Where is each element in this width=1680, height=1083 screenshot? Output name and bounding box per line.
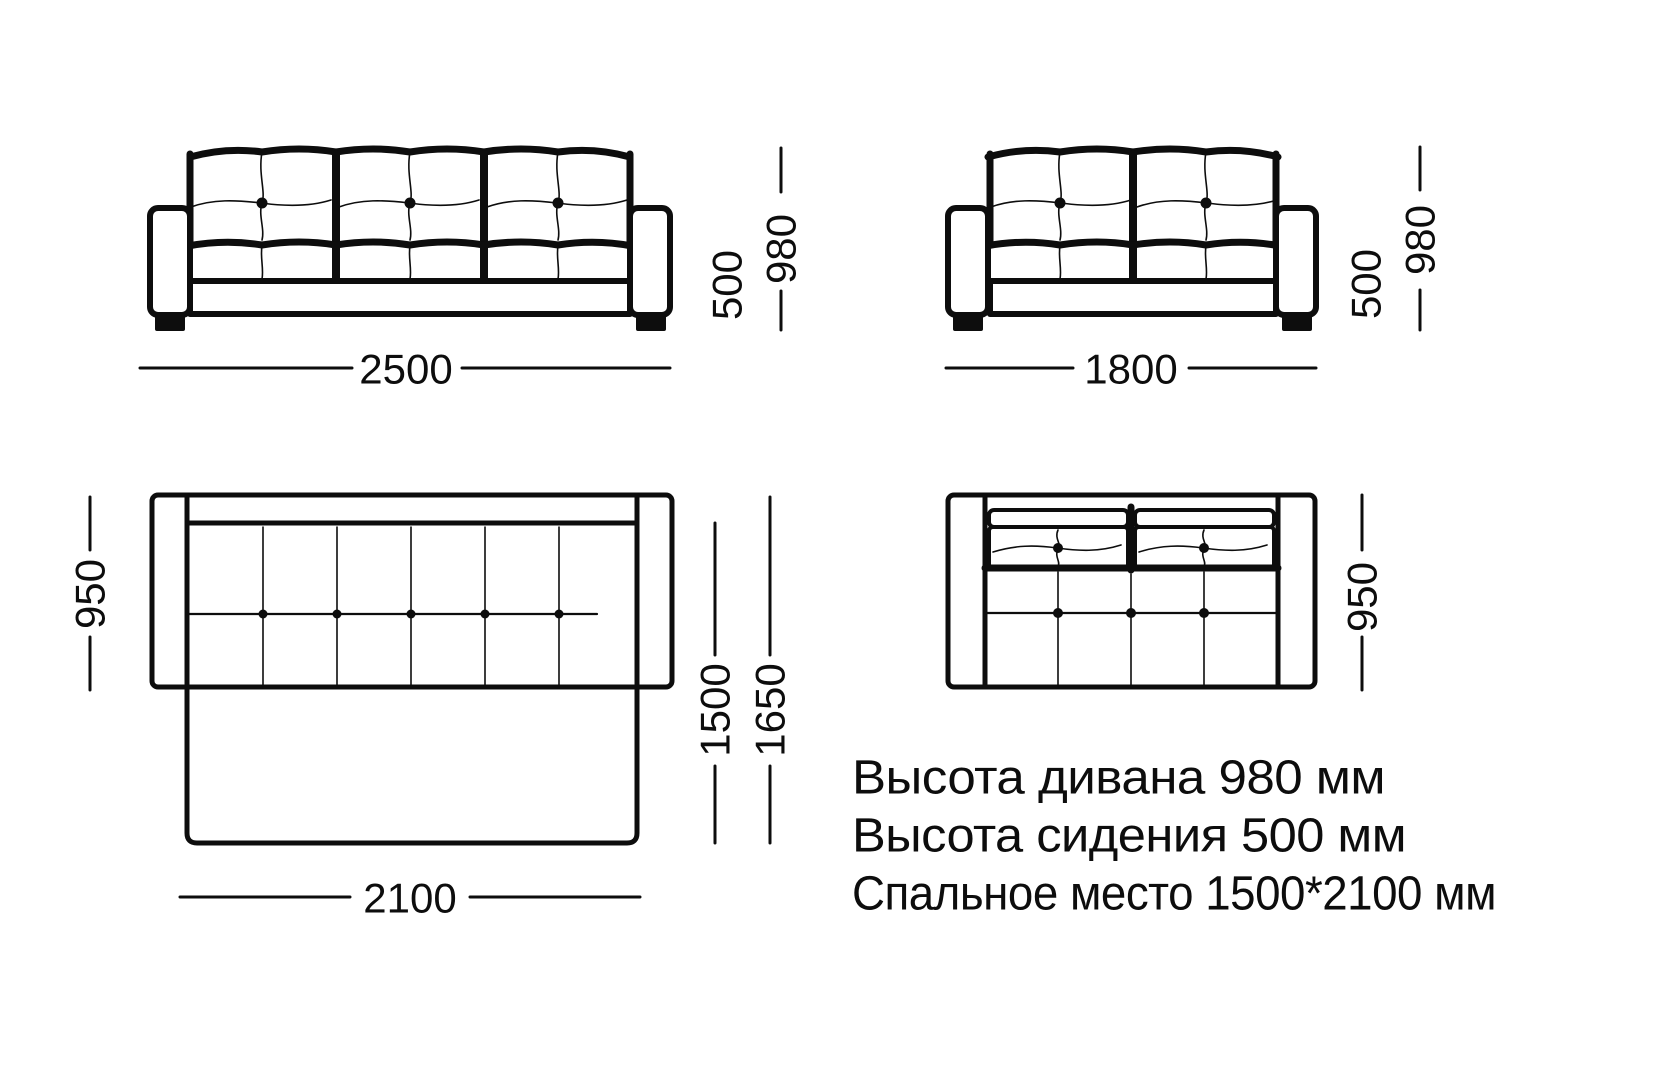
dimension-seat-height-500: 500 bbox=[704, 250, 751, 320]
front-view-3-seat-sofa: 2500 500 980 bbox=[140, 148, 805, 393]
dimension-label-overall-height: 980 bbox=[758, 214, 805, 284]
dimension-label-sofa-width: 2500 bbox=[359, 346, 452, 393]
armrest-right bbox=[1276, 208, 1316, 315]
top-view-sofa-bed-unfolded: 950 1500 1650 2100 bbox=[67, 495, 794, 922]
sofa-dimensions-diagram: 2500 500 980 bbox=[0, 0, 1680, 1083]
sofa-base bbox=[190, 281, 630, 314]
sofa-base bbox=[990, 281, 1276, 314]
dimension-bed-width-2100: 2100 bbox=[180, 875, 640, 922]
tufting-button bbox=[1053, 608, 1063, 618]
seat-cushions bbox=[986, 242, 1280, 281]
dimension-width-1800: 1800 bbox=[946, 346, 1316, 393]
dimension-seat-height-500: 500 bbox=[1343, 249, 1390, 319]
dimension-label-bed-width: 2100 bbox=[363, 875, 456, 922]
backrest-cushions bbox=[988, 149, 1278, 243]
dimension-overall-height-980: 980 bbox=[1397, 147, 1444, 330]
tufting-button bbox=[1053, 543, 1063, 553]
dimension-label-seat-height: 500 bbox=[704, 250, 751, 320]
dimension-label-seat-height: 500 bbox=[1343, 249, 1390, 319]
spec-note-seat-height: Высота сидения 500 мм bbox=[852, 810, 1406, 863]
spec-note-sleeping-area: Спальное место 1500*2100 мм bbox=[852, 868, 1496, 921]
dimension-depth-950: 950 bbox=[1339, 495, 1386, 690]
dimension-width-2500: 2500 bbox=[140, 346, 670, 393]
tufting-lines bbox=[191, 152, 627, 240]
tufting-button bbox=[1126, 608, 1136, 618]
specification-notes: Высота дивана 980 мм Высота сидения 500 … bbox=[852, 752, 1496, 921]
fold-out-bed-section bbox=[187, 687, 637, 843]
armrest-left bbox=[150, 208, 190, 315]
backrest-cushions bbox=[190, 149, 630, 243]
armrest-right bbox=[630, 208, 670, 315]
spec-note-sofa-height: Высота дивана 980 мм bbox=[852, 752, 1385, 805]
tufting-button bbox=[1199, 608, 1209, 618]
dimension-bed-depth-1500: 1500 bbox=[692, 523, 739, 843]
front-view-2-seat-sofa: 1800 500 980 bbox=[946, 147, 1444, 393]
tufting-buttons bbox=[257, 198, 564, 209]
dimension-label-overall-height: 980 bbox=[1397, 205, 1444, 275]
foot-right bbox=[636, 315, 666, 331]
dimension-label-depth: 950 bbox=[1339, 562, 1386, 632]
dimension-overall-height-980: 980 bbox=[758, 148, 805, 330]
foot-left bbox=[155, 315, 185, 331]
top-view-2-seat-sofa: 950 bbox=[948, 495, 1386, 690]
dimension-label-overall-depth: 1650 bbox=[747, 663, 794, 756]
dimension-label-sofa-width: 1800 bbox=[1084, 346, 1177, 393]
foot-right bbox=[1282, 315, 1312, 331]
dimension-label-depth: 950 bbox=[67, 559, 114, 629]
armrest-left bbox=[948, 208, 988, 315]
seat-cushions bbox=[188, 242, 632, 281]
dimension-label-bed-depth: 1500 bbox=[692, 663, 739, 756]
dimension-depth-950: 950 bbox=[67, 497, 114, 690]
tufting-button bbox=[1199, 543, 1209, 553]
diagram-canvas: 2500 500 980 bbox=[0, 0, 1680, 1083]
seat-seams bbox=[261, 246, 558, 279]
dimension-overall-depth-1650: 1650 bbox=[747, 497, 794, 843]
foot-left bbox=[953, 315, 983, 331]
